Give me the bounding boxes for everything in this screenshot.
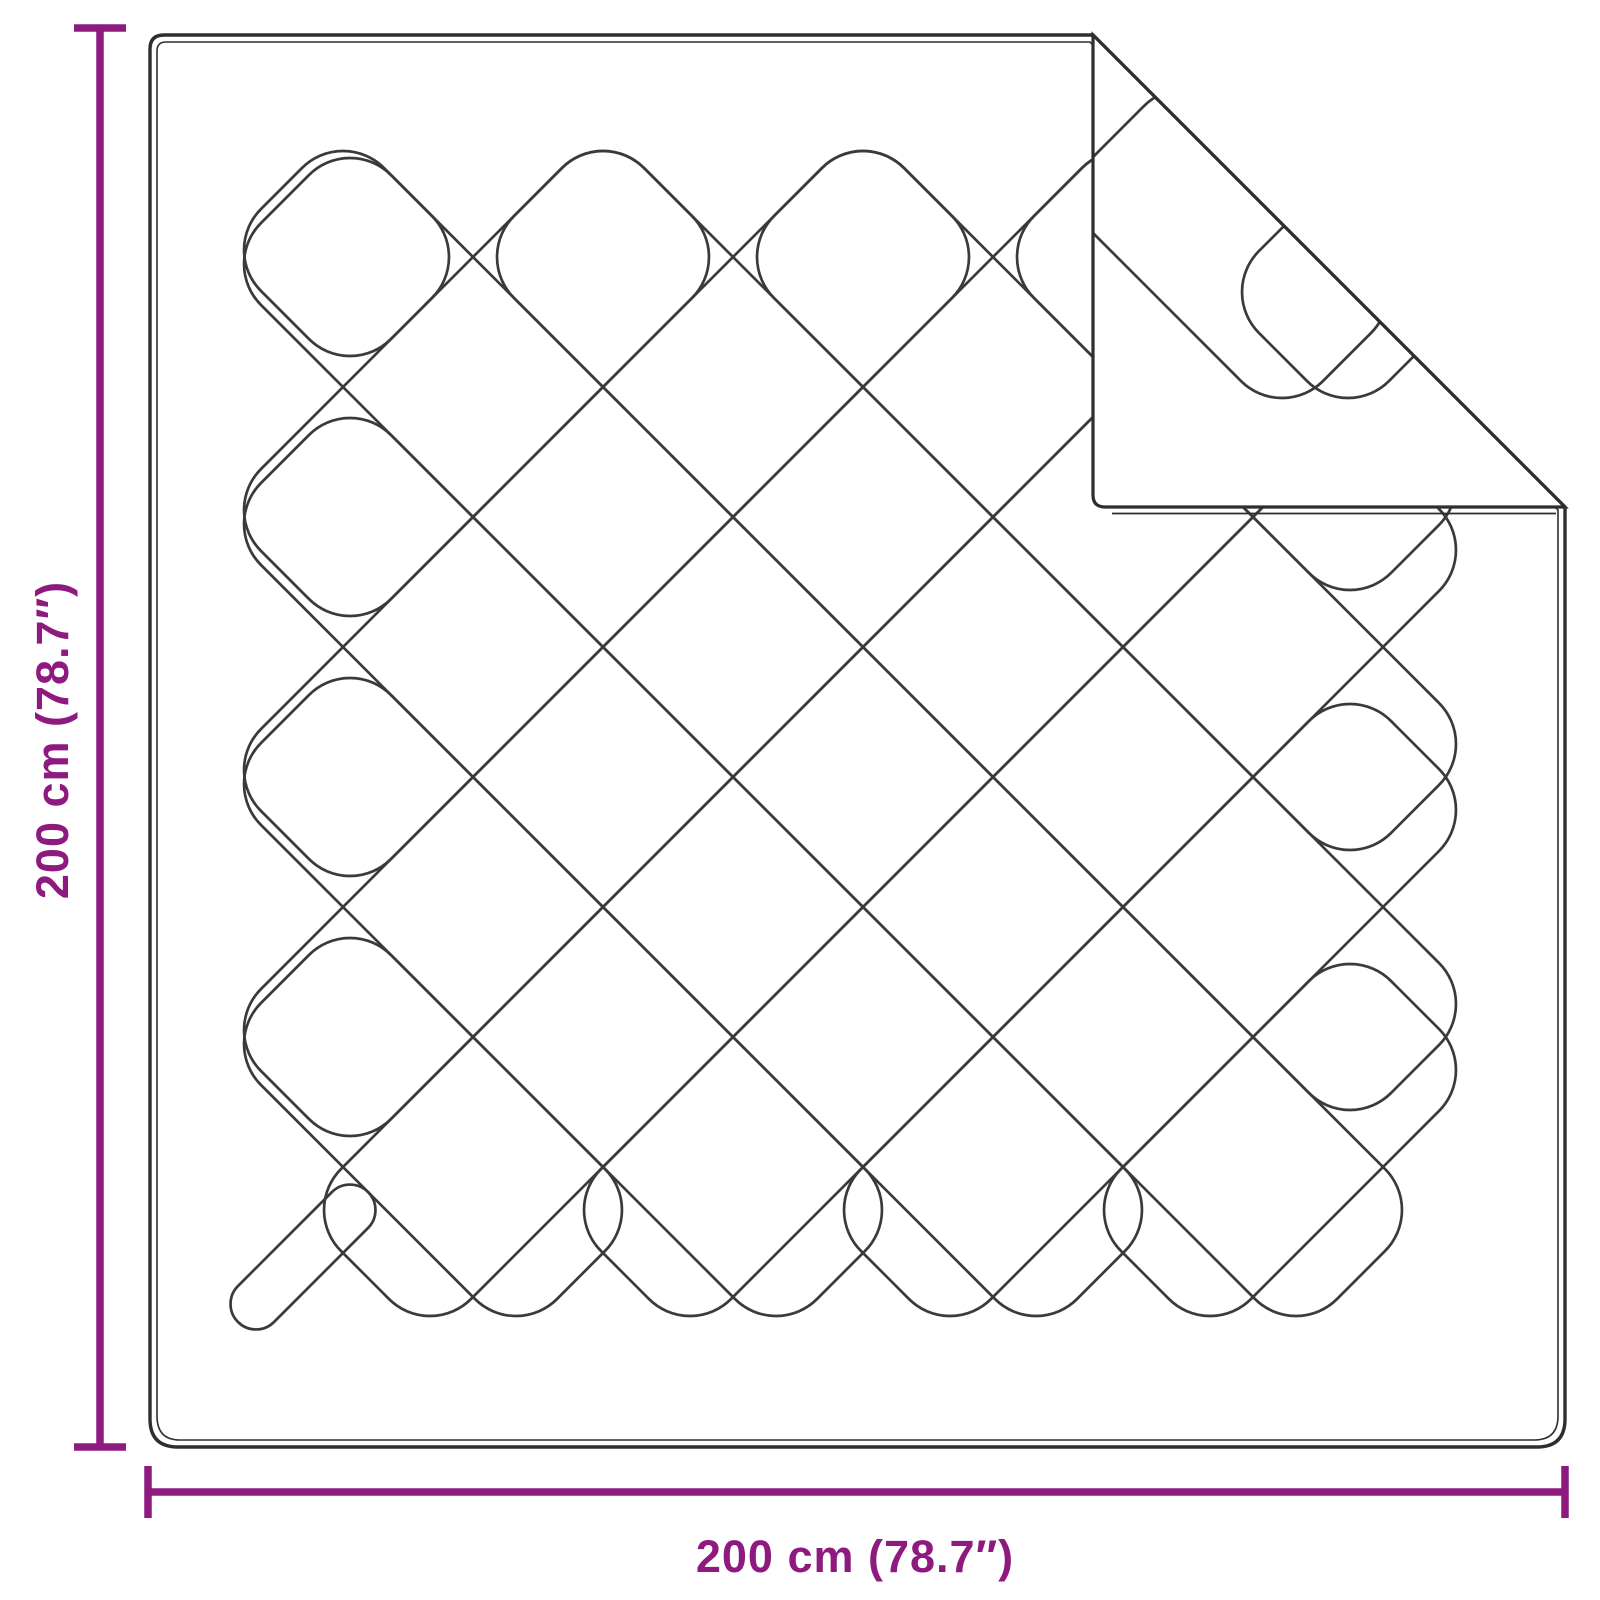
height-dimension-label: 200 cm (78.7″) (27, 581, 78, 899)
diagram-canvas: 200 cm (78.7″) 200 cm (78.7″) (0, 0, 1600, 1600)
width-dimension (148, 1466, 1565, 1518)
product-dimension-diagram: 200 cm (78.7″) 200 cm (78.7″) (0, 0, 1600, 1600)
height-dimension (74, 28, 126, 1447)
width-dimension-label: 200 cm (78.7″) (696, 1531, 1014, 1582)
